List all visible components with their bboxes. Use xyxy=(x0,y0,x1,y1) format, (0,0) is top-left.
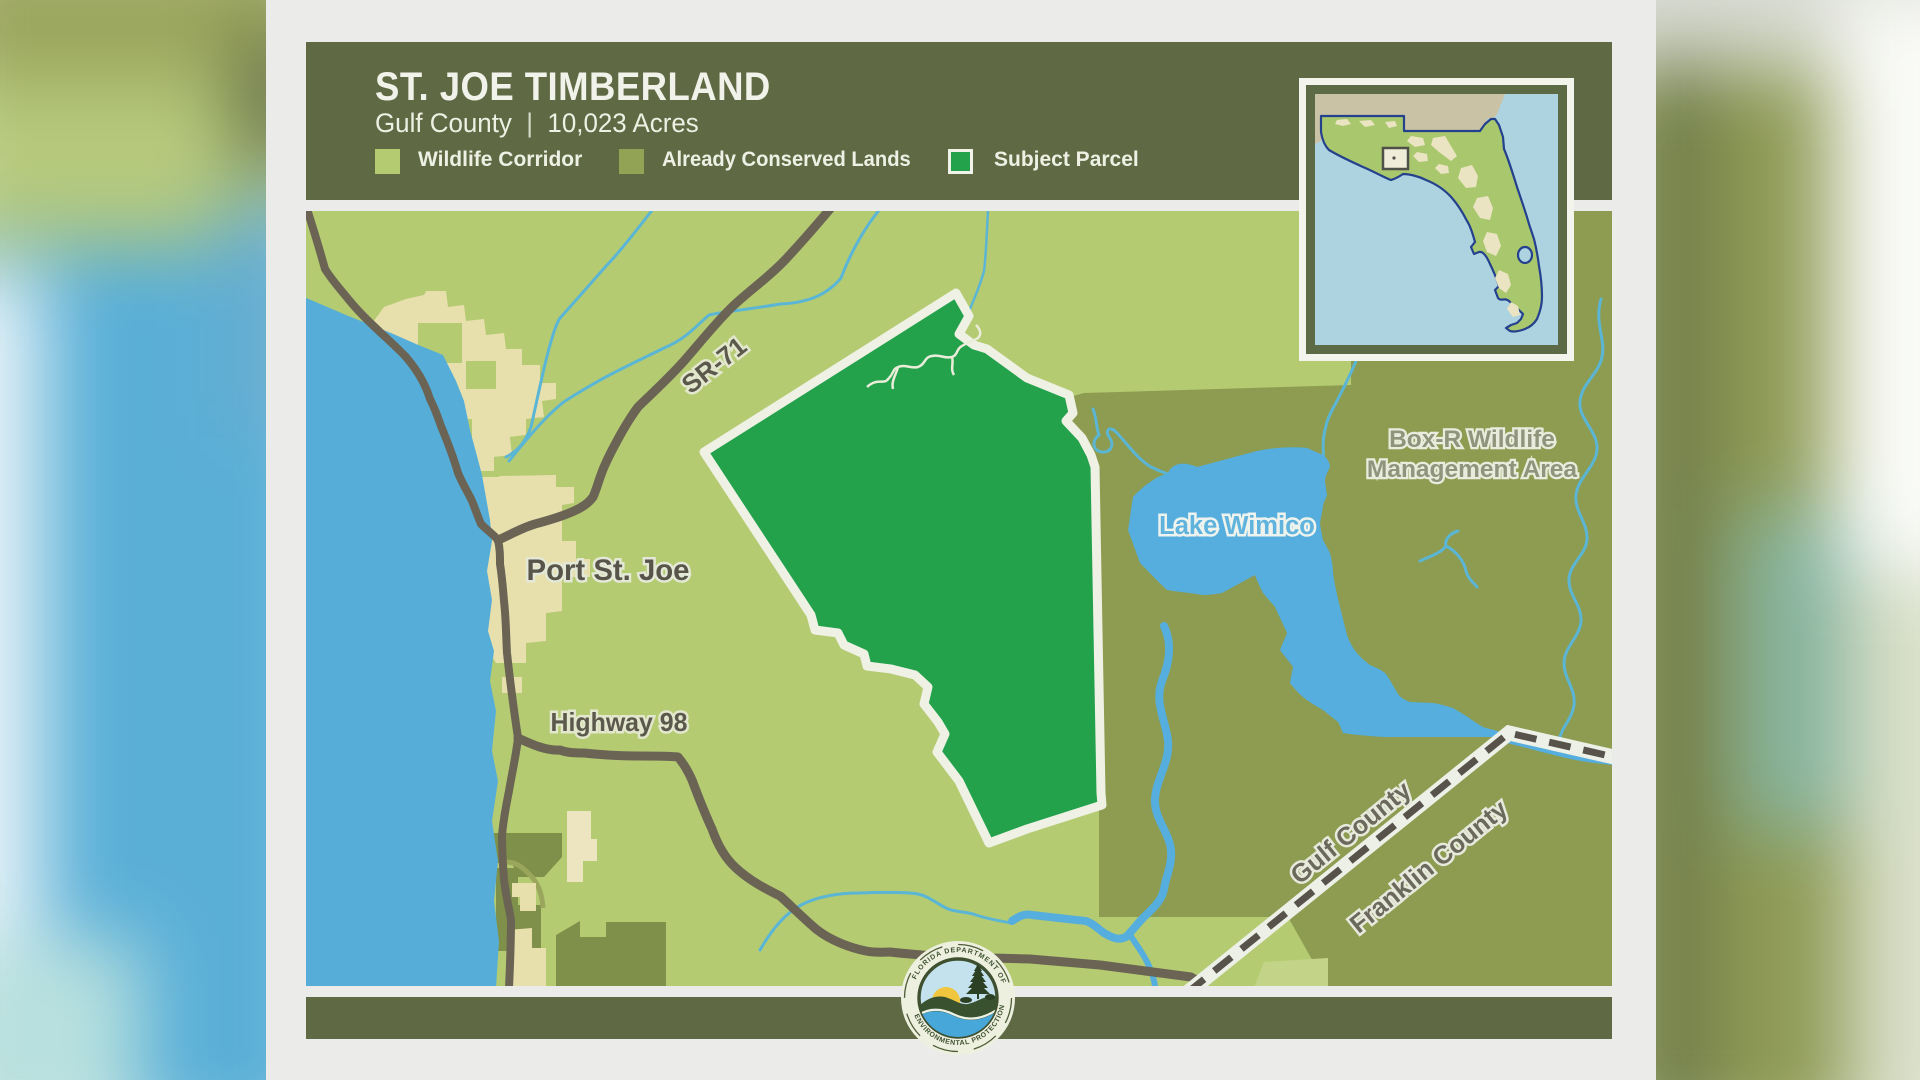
svg-text:Port St. Joe: Port St. Joe xyxy=(527,554,690,587)
svg-text:Lake Wimico: Lake Wimico xyxy=(1159,512,1315,540)
svg-text:Highway 98: Highway 98 xyxy=(551,707,688,737)
svg-text:Management Area: Management Area xyxy=(1367,456,1578,483)
svg-text:Box-R Wildlife: Box-R Wildlife xyxy=(1389,426,1555,453)
